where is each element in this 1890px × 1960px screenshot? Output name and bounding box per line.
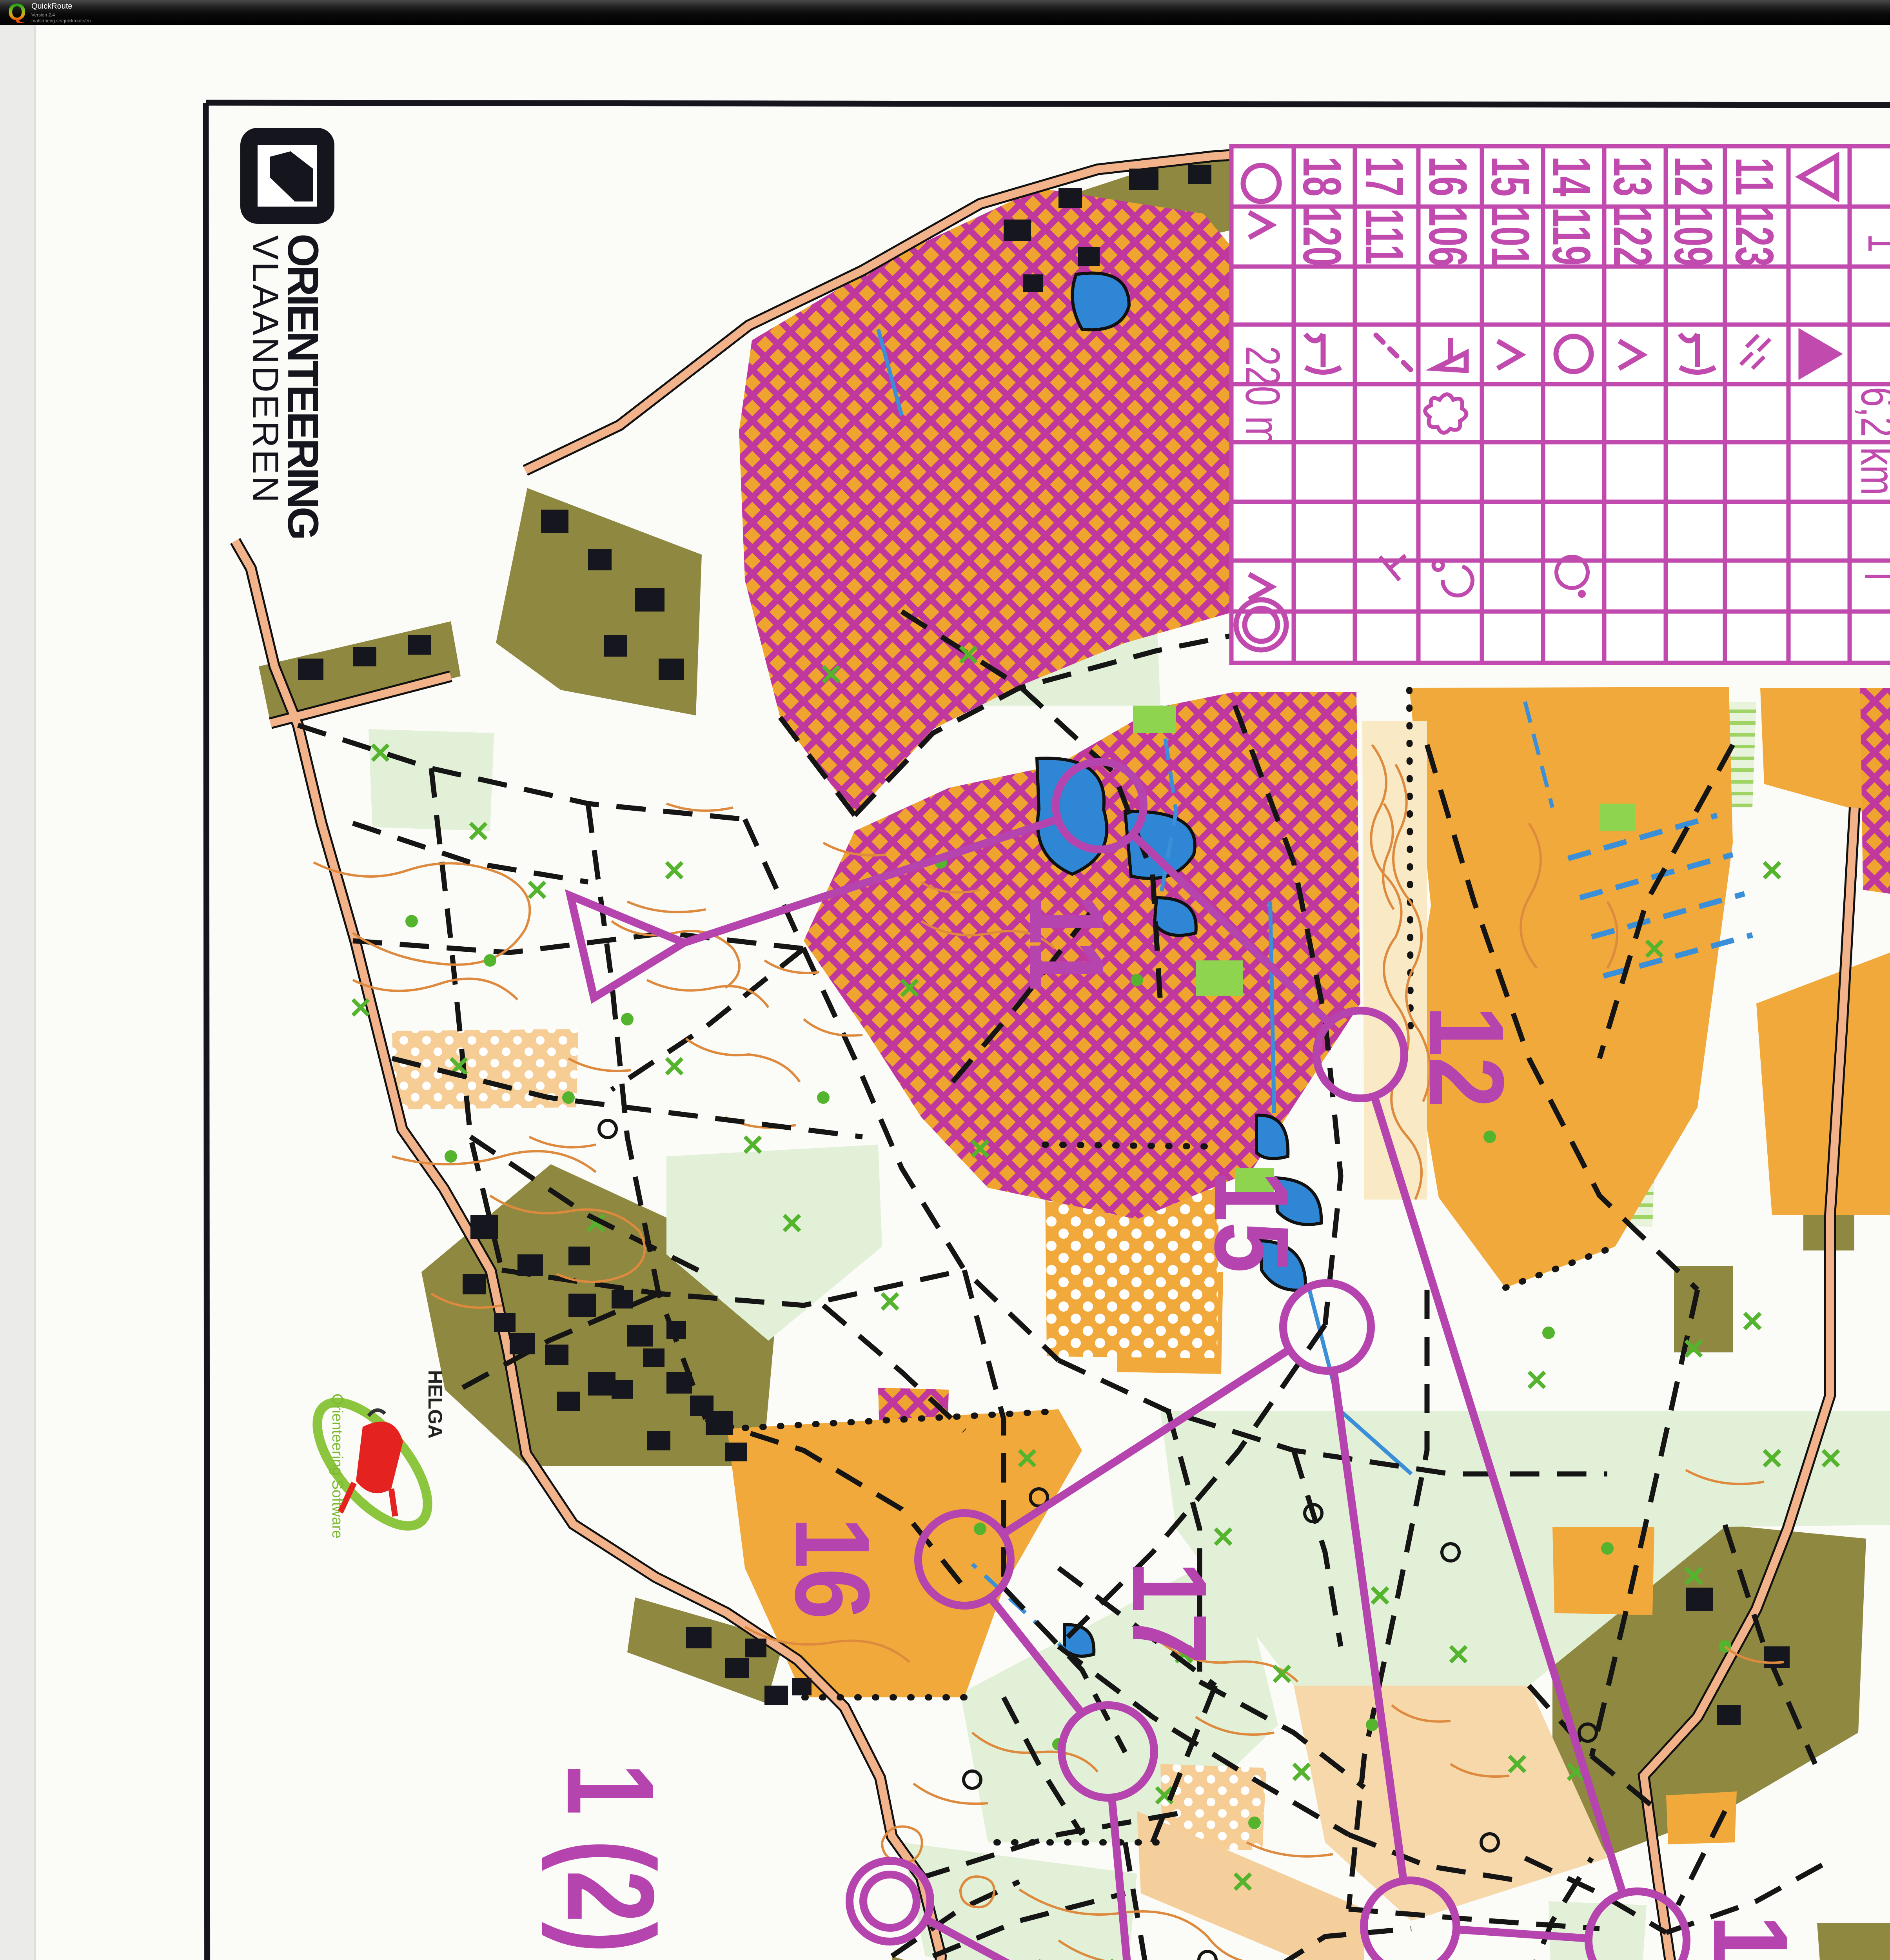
- svg-text:123: 123: [1725, 206, 1785, 266]
- svg-text:122: 122: [1603, 206, 1663, 266]
- svg-text:101: 101: [1480, 206, 1541, 266]
- svg-text:17: 17: [1354, 156, 1415, 196]
- svg-text:18: 18: [1292, 156, 1353, 196]
- svg-text:15: 15: [1193, 1171, 1311, 1273]
- svg-text:11: 11: [1725, 157, 1785, 195]
- svg-text:111: 111: [1354, 208, 1415, 264]
- svg-text:1: 1: [1859, 234, 1890, 252]
- svg-text:T: T: [1856, 566, 1890, 587]
- svg-text:106: 106: [1418, 206, 1478, 266]
- svg-text:119: 119: [1541, 207, 1602, 265]
- svg-text:15: 15: [1480, 156, 1541, 196]
- svg-text:1 (2): 1 (2): [541, 1763, 680, 1952]
- svg-text:17: 17: [1110, 1561, 1229, 1664]
- svg-text:220 m: 220 m: [1235, 346, 1290, 446]
- svg-text:VLAANDEREN: VLAANDEREN: [245, 235, 286, 505]
- svg-text:120: 120: [1292, 206, 1353, 266]
- svg-text:14: 14: [1541, 156, 1602, 196]
- svg-text:13: 13: [1603, 156, 1663, 196]
- svg-text:13: 13: [1691, 1915, 1810, 1960]
- svg-text:11: 11: [1008, 894, 1126, 991]
- svg-text:6,2 km: 6,2 km: [1851, 387, 1890, 495]
- svg-text:16: 16: [773, 1517, 891, 1619]
- svg-text:12: 12: [1407, 1005, 1526, 1108]
- svg-text:109: 109: [1663, 206, 1724, 266]
- svg-text:12: 12: [1663, 156, 1724, 196]
- svg-text:HELGA: HELGA: [424, 1370, 446, 1439]
- svg-text:Orienteering Software: Orienteering Software: [329, 1394, 345, 1539]
- svg-text:16: 16: [1418, 156, 1478, 196]
